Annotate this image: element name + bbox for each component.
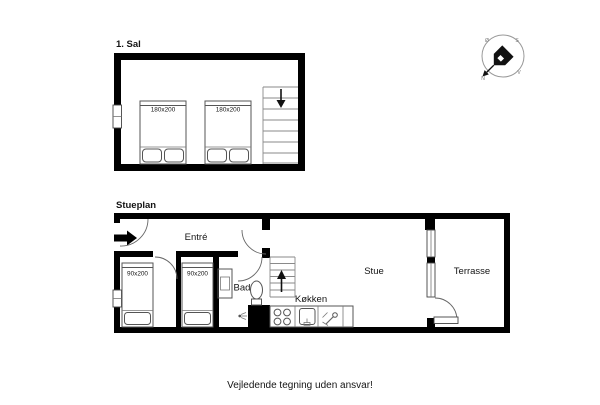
double-bed-1: 180x200 <box>140 101 186 164</box>
staircase-first-floor <box>263 87 298 164</box>
first-floor-window <box>113 105 122 128</box>
terrace-door-leaf <box>434 317 458 324</box>
staircase-ground-floor <box>270 257 295 297</box>
wall-left-lower <box>114 128 121 171</box>
wall-hall-stub-top <box>262 213 270 230</box>
wall-right-terrace <box>504 213 510 333</box>
compass-letter-east: Ø <box>485 38 489 44</box>
first-floor-plan: 1. Sal <box>113 39 305 171</box>
wall-top <box>114 53 305 60</box>
door-arc-bedroom <box>155 257 177 279</box>
stairs-down-arrow-icon <box>277 89 286 108</box>
wall-right <box>298 53 305 171</box>
ground-floor-title: Stueplan <box>116 200 156 211</box>
bed-size-label: 180x200 <box>216 107 241 114</box>
stairs-up-arrow-icon <box>277 270 286 292</box>
bathroom-sink <box>221 277 230 290</box>
wall-left-upper <box>114 53 121 105</box>
wall-bottom <box>114 164 305 171</box>
wall-left-a <box>114 213 120 223</box>
disclaimer-text: Vejledende tegning uden ansvar! <box>227 380 373 391</box>
compass-letter-west: V <box>517 70 521 76</box>
room-label-kokken: Køkken <box>295 294 327 305</box>
wall-bottom <box>114 327 510 333</box>
room-label-entre: Entré <box>185 232 208 243</box>
wall-top <box>114 213 508 219</box>
floor-plan-drawing: 1. Sal <box>0 0 600 400</box>
first-floor-title: 1. Sal <box>116 39 141 50</box>
wall-utility-block <box>248 305 270 327</box>
wall-left-c <box>114 307 120 327</box>
wall-terrace-stub-mid <box>427 257 435 263</box>
bed-size-label: 180x200 <box>151 107 176 114</box>
single-bed-2: 90x200 <box>182 263 213 327</box>
bed-size-label: 90x200 <box>127 271 148 278</box>
room-label-stue: Stue <box>364 266 384 277</box>
room-label-bad: Bad <box>234 283 251 294</box>
wall-terrace-stub-top <box>425 213 435 230</box>
kitchen-counter <box>270 306 353 327</box>
room-label-terrasse: Terrasse <box>454 266 490 277</box>
toilet-bowl <box>251 281 263 299</box>
door-arc-entrance <box>120 219 148 246</box>
compass-letter-north: N <box>481 76 485 82</box>
ground-floor-plan: Stueplan <box>113 200 510 333</box>
shower-drain-icon <box>238 313 247 320</box>
double-bed-2: 180x200 <box>205 101 251 164</box>
stue-terrasse-glazing <box>427 230 435 297</box>
wall-left-b <box>114 251 120 290</box>
wall-hall-stub-bottom <box>262 248 270 258</box>
wall-bedroom-divider <box>176 251 181 327</box>
single-bed-1: 90x200 <box>122 263 153 327</box>
compass-rose: Ø S V N <box>477 35 524 82</box>
toilet-tank <box>252 299 262 305</box>
wall-entre-b <box>177 251 238 257</box>
bed-size-label: 90x200 <box>187 271 208 278</box>
door-arc-bad <box>238 257 262 281</box>
kitchen-fixtures <box>270 306 353 327</box>
wall-entre-a <box>120 251 153 257</box>
bedroom-window <box>113 290 122 307</box>
